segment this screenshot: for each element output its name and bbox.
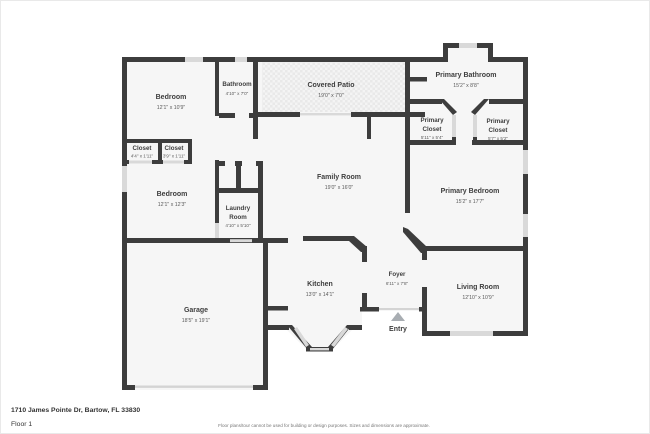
room-name: Primary	[486, 118, 510, 125]
room-dims: 6'11" x 7'8"	[386, 281, 409, 286]
room-dims: 19'0" x 7'0"	[318, 93, 344, 99]
room-dims: 3'9" x 1'11"	[163, 154, 186, 159]
room-dims: 5'11" x 5'4"	[421, 135, 444, 140]
room-name: Family Room	[317, 174, 361, 181]
room-name: Bathroom	[222, 81, 252, 88]
room-name: Kitchen	[307, 281, 333, 288]
room-dims: 19'0" x 16'0"	[325, 185, 354, 191]
floor-plan-page: Bedroom 12'1" x 10'9" Bathroom 4'10" x 7…	[0, 0, 650, 434]
room-dims: 4'10" x 7'0"	[226, 91, 249, 96]
room-label-closet-right: Closet 3'9" x 1'11"	[163, 145, 186, 159]
window	[185, 57, 203, 62]
room-dims: 12'10" x 10'9"	[462, 295, 493, 301]
room-name: Laundry	[226, 205, 251, 212]
floor-plan-svg: Bedroom 12'1" x 10'9" Bathroom 4'10" x 7…	[0, 0, 650, 434]
entry-threshold	[379, 308, 419, 310]
entry-marker: Entry	[389, 312, 407, 333]
room-name: Primary Bathroom	[435, 72, 496, 79]
room-dims: 15'2" x 17'7"	[456, 199, 485, 205]
room-dims: 13'0" x 14'1"	[306, 292, 335, 298]
room-name: Garage	[184, 307, 208, 314]
room-name: Primary	[420, 117, 444, 124]
room-name: Closet	[133, 145, 152, 152]
entry-arrow-icon	[391, 312, 405, 321]
window	[459, 43, 477, 48]
room-name: Covered Patio	[307, 82, 354, 89]
room-name: Room	[229, 214, 247, 221]
room-name: Foyer	[389, 271, 406, 278]
room-name: Bedroom	[157, 191, 188, 198]
address-text: 1710 James Pointe Dr, Bartow, FL 33830	[11, 407, 140, 414]
floor-label: Floor 1	[11, 421, 32, 428]
laundry-garage-door	[230, 239, 252, 242]
window	[523, 150, 528, 174]
window	[122, 166, 127, 192]
closet-door	[129, 161, 152, 164]
room-name: Closet	[423, 126, 442, 133]
room-name: Living Room	[457, 284, 499, 291]
closet-door	[452, 115, 456, 137]
room-dims: 18'5" x 19'1"	[182, 318, 211, 324]
disclaimer-text: Floor plans/tour cannot be used for buil…	[218, 423, 430, 428]
bay-window	[310, 348, 329, 350]
room-name: Bedroom	[156, 94, 187, 101]
garage-door	[135, 386, 253, 388]
room-dims: 12'1" x 10'9"	[157, 105, 186, 111]
closet-door	[473, 115, 477, 137]
room-name: Primary Bedroom	[441, 188, 500, 195]
window	[235, 57, 247, 62]
window	[523, 214, 528, 237]
room-label-primary-closet-left: Primary Closet 5'11" x 5'4"	[420, 117, 444, 140]
door-opening	[215, 223, 219, 238]
room-dims: 15'2" x 8'8"	[453, 83, 479, 89]
room-name: Closet	[165, 145, 184, 152]
room-dims: 5'7" x 5'2"	[488, 136, 508, 141]
room-label-closet-left: Closet 4'4" x 1'11"	[131, 145, 154, 159]
room-dims: 4'10" x 5'10"	[225, 223, 251, 228]
room-label-primary-closet-right: Primary Closet 5'7" x 5'2"	[486, 118, 510, 141]
patio-slider-door	[300, 113, 351, 115]
room-name: Closet	[489, 127, 508, 134]
room-dims: 12'1" x 12'3"	[158, 202, 187, 208]
window	[450, 331, 493, 336]
room-dims: 4'4" x 1'11"	[131, 154, 154, 159]
closet-door	[163, 161, 184, 164]
entry-label: Entry	[389, 326, 407, 333]
